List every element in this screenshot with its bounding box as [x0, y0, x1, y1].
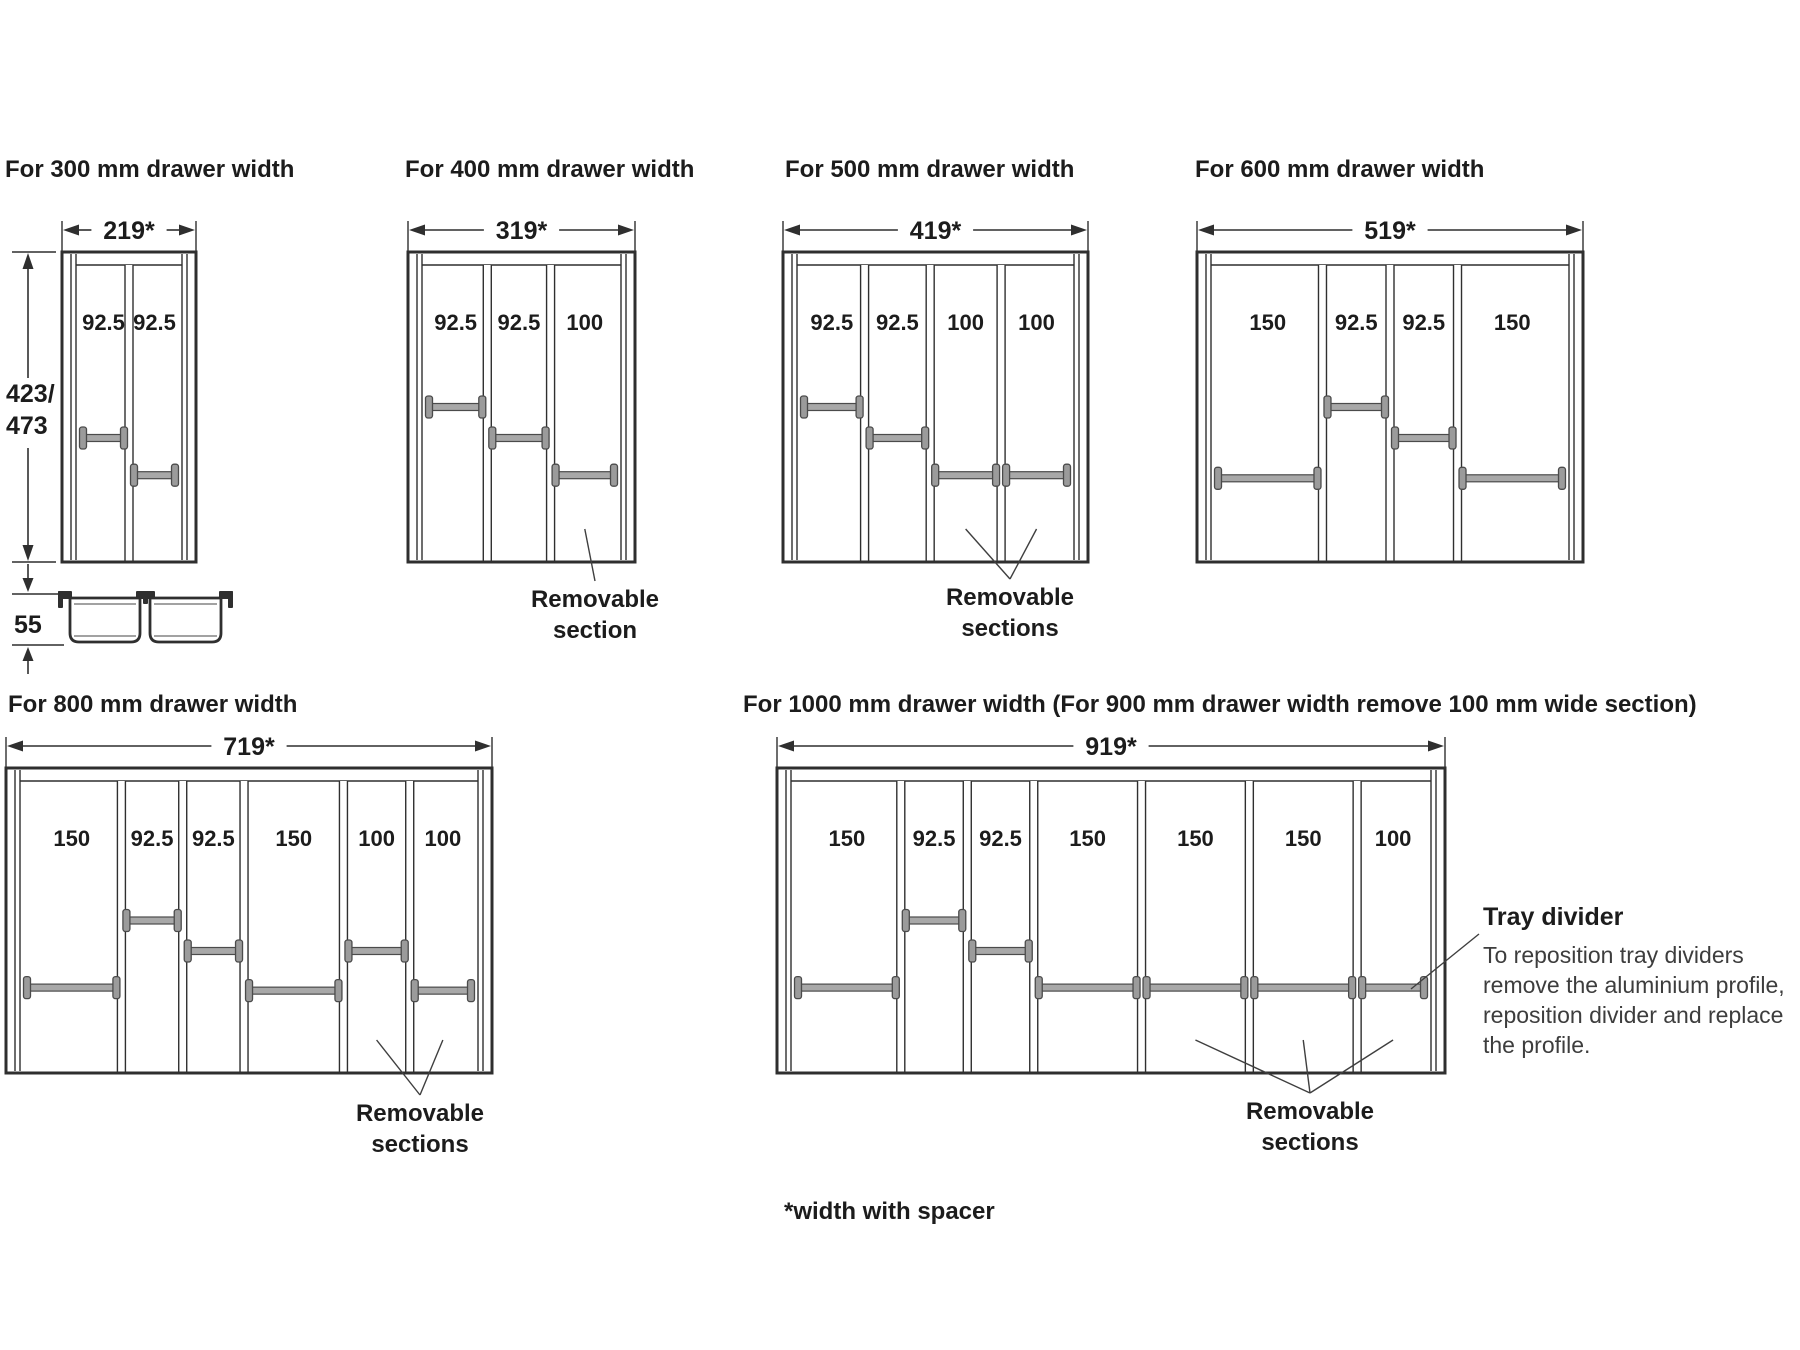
dimension-arrowhead-right	[179, 225, 195, 236]
divider-profile-end-cap	[795, 977, 802, 999]
divider-profile-end-cap	[131, 464, 138, 486]
divider-profile-end-cap	[1003, 464, 1010, 486]
divider-profile-end-cap	[1382, 396, 1389, 418]
divider-profile-end-cap	[411, 980, 418, 1002]
divider-profile-bar	[136, 472, 173, 479]
divider-profile-end-cap	[1314, 467, 1321, 489]
dimension-arrowhead-up	[23, 253, 34, 269]
divider-profile-end-cap	[246, 980, 253, 1002]
divider-profile-end-cap	[80, 427, 87, 449]
divider-profile-bar	[350, 948, 402, 955]
drawer-width-dimension-label: 419*	[910, 217, 962, 245]
section-width-label: 100	[425, 826, 462, 851]
divider-profile-end-cap	[401, 940, 408, 962]
section-width-label: 92.5	[434, 310, 477, 335]
diagram-title: For 400 mm drawer width	[405, 156, 694, 183]
divider-profile-end-cap	[1025, 940, 1032, 962]
tray-divider-gap	[339, 781, 347, 1071]
divider-profile-bar	[800, 984, 894, 991]
divider-profile-bar	[1149, 984, 1243, 991]
divider-profile-end-cap	[468, 980, 475, 1002]
diagram-title: For 500 mm drawer width	[785, 156, 1074, 183]
tray-divider-gap	[406, 781, 414, 1071]
divider-profile-bar	[1465, 475, 1560, 482]
section-width-label: 92.5	[876, 310, 919, 335]
section-width-label: 100	[1375, 826, 1412, 851]
drawer-width-dimension-label: 219*	[103, 217, 155, 245]
tray-divider-gap	[1138, 781, 1146, 1071]
divider-profile-bar	[1329, 404, 1383, 411]
divider-profile-end-cap	[1449, 427, 1456, 449]
section-width-label: 100	[566, 310, 603, 335]
divider-profile-bar	[85, 435, 122, 442]
section-width-label: 150	[1285, 826, 1322, 851]
divider-profile-bar	[937, 472, 994, 479]
section-width-label: 150	[1249, 310, 1286, 335]
drawer-depth-dimension-label: 473	[6, 412, 48, 440]
divider-profile-end-cap	[1359, 977, 1366, 999]
section-width-label: 92.5	[979, 826, 1022, 851]
divider-profile-end-cap	[1251, 977, 1258, 999]
drawer-width-dimension-label: 519*	[1364, 217, 1416, 245]
divider-profile-bar	[128, 917, 175, 924]
diagram-title: For 600 mm drawer width	[1195, 156, 1484, 183]
dimension-arrowhead-left	[409, 225, 425, 236]
removable-annotation-line1: Removable	[531, 586, 659, 613]
tray-divider-note-title: Tray divider	[1483, 903, 1800, 931]
divider-profile-end-cap	[1215, 467, 1222, 489]
divider-profile-end-cap	[892, 977, 899, 999]
dimension-arrowhead-left	[7, 741, 23, 752]
divider-profile-end-cap	[542, 427, 549, 449]
diagram-title: For 300 mm drawer width	[5, 156, 294, 183]
removable-annotation-line1: Removable	[356, 1100, 484, 1127]
tray-height-dimension-label: 55	[14, 611, 42, 639]
divider-profile-bar	[1041, 984, 1135, 991]
tray-divider-gap	[240, 781, 248, 1071]
dimension-arrowhead-right	[1428, 741, 1444, 752]
section-width-label: 150	[1494, 310, 1531, 335]
tray-outline	[6, 768, 492, 1073]
divider-profile-end-cap	[552, 464, 559, 486]
tray-divider-gap	[997, 265, 1005, 560]
tray-divider-note: Tray divider To reposition tray dividers…	[1483, 903, 1800, 1060]
dimension-arrowhead-left	[778, 741, 794, 752]
divider-profile-end-cap	[1559, 467, 1566, 489]
divider-profile-end-cap	[866, 427, 873, 449]
divider-profile-end-cap	[1143, 977, 1150, 999]
divider-profile-end-cap	[479, 396, 486, 418]
divider-profile-end-cap	[902, 910, 909, 932]
divider-profile-bar	[190, 948, 237, 955]
divider-profile-end-cap	[123, 910, 130, 932]
divider-profile-end-cap	[335, 980, 342, 1002]
tray-divider-gap	[1454, 265, 1462, 560]
divider-profile-bar	[1256, 984, 1350, 991]
section-width-label: 92.5	[131, 826, 174, 851]
tray-divider-gap	[125, 265, 133, 560]
section-width-label: 100	[947, 310, 984, 335]
divider-profile-end-cap	[959, 910, 966, 932]
diagram-title: For 800 mm drawer width	[8, 691, 297, 718]
dimension-arrowhead-up	[23, 647, 34, 661]
divider-profile-bar	[417, 987, 469, 994]
divider-profile-bar	[29, 984, 114, 991]
divider-profile-bar	[908, 917, 960, 924]
dimension-arrowhead-left	[784, 225, 800, 236]
divider-profile-end-cap	[993, 464, 1000, 486]
tray-divider-note-body: To reposition tray dividers remove the a…	[1483, 940, 1800, 1060]
tray-divider-gap	[926, 265, 934, 560]
width-with-spacer-footnote: *width with spacer	[784, 1198, 995, 1226]
divider-profile-bar	[1008, 472, 1065, 479]
diagram-canvas: For 300 mm drawer width219*92.592.5For 4…	[0, 0, 1800, 1350]
section-width-label: 92.5	[913, 826, 956, 851]
removable-annotation-line2: sections	[1261, 1129, 1358, 1156]
divider-profile-end-cap	[1035, 977, 1042, 999]
tray-clip-left	[58, 591, 63, 608]
divider-profile-end-cap	[1324, 396, 1331, 418]
drawer-width-dimension-label: 719*	[223, 733, 275, 761]
tray-divider-gap	[547, 265, 555, 560]
divider-profile-bar	[1220, 475, 1315, 482]
section-width-label: 150	[1069, 826, 1106, 851]
section-width-label: 92.5	[1335, 310, 1378, 335]
tray-divider-gap	[1353, 781, 1361, 1071]
section-width-label: 150	[275, 826, 312, 851]
removable-annotation-line1: Removable	[1246, 1098, 1374, 1125]
dimension-arrowhead-right	[475, 741, 491, 752]
dimension-arrowhead-right	[1071, 225, 1087, 236]
dimension-arrowhead-left	[1198, 225, 1214, 236]
tray-clip-center	[143, 591, 148, 604]
divider-profile-bar	[558, 472, 612, 479]
section-width-label: 150	[53, 826, 90, 851]
divider-profile-end-cap	[24, 977, 31, 999]
section-width-label: 150	[1177, 826, 1214, 851]
divider-profile-end-cap	[969, 940, 976, 962]
tray-divider-gap	[1245, 781, 1253, 1071]
section-width-label: 92.5	[82, 310, 125, 335]
section-width-label: 150	[829, 826, 866, 851]
divider-profile-end-cap	[345, 940, 352, 962]
section-width-label: 92.5	[498, 310, 541, 335]
removable-annotation-line2: section	[553, 617, 637, 644]
divider-profile-end-cap	[1392, 427, 1399, 449]
divider-profile-bar	[806, 404, 858, 411]
dimension-arrowhead-right	[618, 225, 634, 236]
divider-profile-end-cap	[489, 427, 496, 449]
divider-profile-bar	[251, 987, 336, 994]
dimension-arrowhead-left	[63, 225, 79, 236]
divider-profile-end-cap	[1459, 467, 1466, 489]
removable-annotation-line2: sections	[961, 615, 1058, 642]
divider-profile-bar	[431, 404, 480, 411]
diagram-title: For 1000 mm drawer width (For 900 mm dra…	[743, 691, 1697, 718]
divider-profile-end-cap	[1064, 464, 1071, 486]
divider-profile-end-cap	[113, 977, 120, 999]
section-width-label: 92.5	[133, 310, 176, 335]
tray-divider-gap	[1030, 781, 1038, 1071]
divider-profile-end-cap	[922, 427, 929, 449]
section-width-label: 92.5	[192, 826, 235, 851]
divider-profile-end-cap	[184, 940, 191, 962]
divider-profile-end-cap	[932, 464, 939, 486]
divider-profile-bar	[872, 435, 924, 442]
tray-clip-right	[228, 591, 233, 608]
dimension-arrowhead-down	[23, 545, 34, 561]
section-width-label: 100	[358, 826, 395, 851]
divider-profile-bar	[1397, 435, 1451, 442]
divider-profile-end-cap	[121, 427, 128, 449]
drawer-width-dimension-label: 919*	[1085, 733, 1137, 761]
divider-profile-end-cap	[174, 910, 181, 932]
section-width-label: 92.5	[1402, 310, 1445, 335]
divider-profile-end-cap	[1241, 977, 1248, 999]
divider-profile-end-cap	[856, 396, 863, 418]
removable-annotation-line2: sections	[371, 1131, 468, 1158]
divider-profile-end-cap	[1133, 977, 1140, 999]
removable-annotation-line1: Removable	[946, 584, 1074, 611]
dimension-arrowhead-down	[23, 578, 34, 592]
divider-profile-end-cap	[236, 940, 243, 962]
tray-outline	[777, 768, 1445, 1073]
divider-profile-end-cap	[1349, 977, 1356, 999]
section-width-label: 100	[1018, 310, 1055, 335]
drawer-depth-dimension-label: 423/	[6, 380, 55, 408]
divider-profile-end-cap	[801, 396, 808, 418]
section-width-label: 92.5	[810, 310, 853, 335]
divider-profile-end-cap	[172, 464, 179, 486]
divider-profile-bar	[494, 435, 543, 442]
divider-profile-end-cap	[426, 396, 433, 418]
drawer-width-dimension-label: 319*	[496, 217, 548, 245]
divider-profile-bar	[974, 948, 1026, 955]
dimension-arrowhead-right	[1566, 225, 1582, 236]
divider-profile-end-cap	[611, 464, 618, 486]
